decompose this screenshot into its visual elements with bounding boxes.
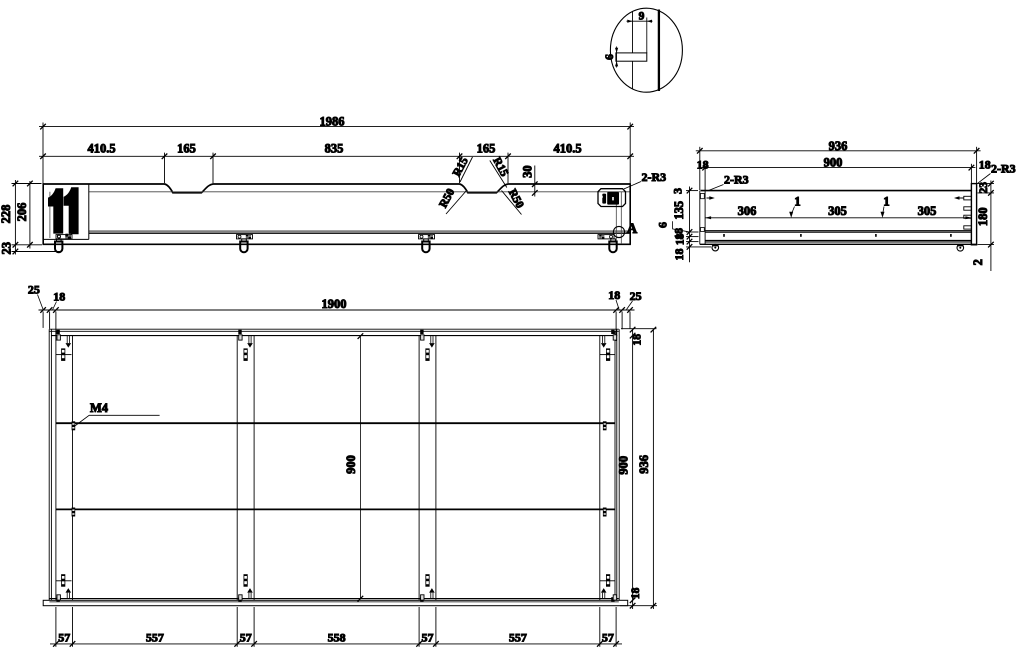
svg-text:1: 1 (883, 195, 889, 209)
svg-text:57: 57 (58, 631, 70, 645)
svg-text:306: 306 (738, 204, 757, 218)
svg-text:R50: R50 (437, 187, 457, 210)
svg-text:6: 6 (604, 54, 616, 60)
svg-text:23: 23 (978, 182, 990, 194)
svg-text:410.5: 410.5 (553, 142, 581, 156)
svg-text:A: A (627, 221, 638, 237)
svg-text:165: 165 (477, 142, 496, 156)
svg-text:2: 2 (971, 259, 985, 265)
svg-text:936: 936 (829, 139, 848, 153)
svg-text:18: 18 (697, 157, 709, 171)
svg-text:30: 30 (521, 165, 535, 178)
svg-text:25: 25 (28, 283, 40, 297)
svg-text:557: 557 (146, 631, 164, 645)
svg-text:6: 6 (656, 222, 670, 228)
svg-text:558: 558 (328, 631, 346, 645)
svg-text:57: 57 (422, 631, 434, 645)
svg-text:18: 18 (979, 158, 991, 172)
svg-text:18: 18 (672, 249, 686, 261)
svg-text:1900: 1900 (322, 297, 347, 311)
svg-text:R15: R15 (490, 156, 510, 179)
svg-text:206: 206 (15, 203, 29, 222)
svg-text:900: 900 (344, 455, 358, 474)
svg-text:135: 135 (672, 201, 686, 220)
svg-text:57: 57 (602, 631, 614, 645)
svg-text:2-R3: 2-R3 (724, 173, 749, 187)
svg-text:835: 835 (325, 142, 344, 156)
svg-text:1: 1 (794, 195, 800, 209)
svg-text:936: 936 (637, 455, 651, 474)
svg-text:1986: 1986 (320, 115, 345, 129)
svg-text:228: 228 (0, 205, 13, 224)
svg-text:18: 18 (53, 289, 65, 303)
svg-text:305: 305 (918, 204, 937, 218)
svg-text:18: 18 (631, 334, 643, 346)
svg-text:165: 165 (177, 142, 196, 156)
svg-text:18: 18 (608, 288, 620, 302)
svg-text:2-R3: 2-R3 (991, 162, 1016, 176)
svg-text:900: 900 (824, 156, 843, 170)
svg-text:9: 9 (639, 10, 645, 22)
svg-text:18: 18 (630, 587, 642, 599)
svg-text:25: 25 (630, 289, 642, 303)
svg-text:180: 180 (976, 207, 990, 226)
svg-text:18: 18 (675, 233, 687, 245)
svg-text:23: 23 (0, 242, 14, 255)
svg-text:3: 3 (670, 188, 684, 194)
svg-text:557: 557 (509, 631, 527, 645)
svg-text:2-R3: 2-R3 (642, 170, 667, 184)
svg-text:305: 305 (828, 204, 847, 218)
svg-text:M4: M4 (90, 401, 109, 415)
svg-text:900: 900 (617, 456, 631, 475)
svg-text:57: 57 (240, 631, 252, 645)
svg-text:410.5: 410.5 (87, 142, 115, 156)
